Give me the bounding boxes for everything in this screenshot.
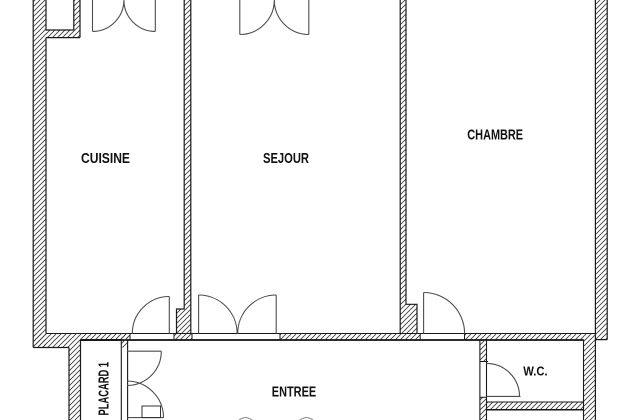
svg-text:W.C.: W.C. [523,365,547,379]
svg-text:CHAMBRE: CHAMBRE [467,128,523,144]
svg-text:SEJOUR: SEJOUR [263,151,309,167]
svg-text:CUISINE: CUISINE [81,151,130,167]
svg-text:ENTREE: ENTREE [272,384,317,400]
svg-text:PLACARD 1: PLACARD 1 [96,362,112,416]
